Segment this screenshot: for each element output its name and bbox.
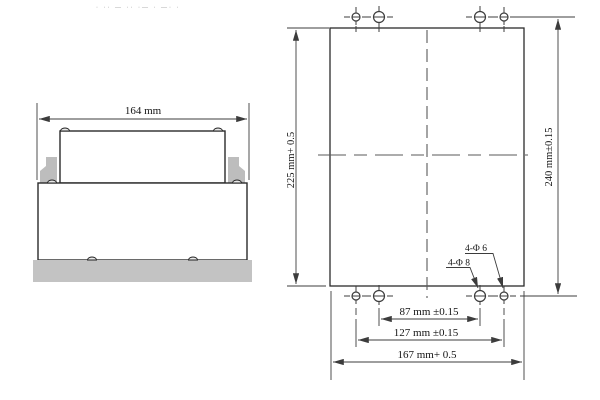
screw-rear-left: [61, 128, 70, 131]
side-view: 164 mm: [33, 103, 252, 282]
panel-cutout-view: 240 mm±0.15 4-Φ 6 4-Φ 8 87 mm ±0.15: [318, 6, 577, 380]
cutout-width-label: 167 mm+ 0.5: [397, 349, 457, 361]
hole-bottom-inner-left: [365, 285, 393, 305]
dimension-drawing: · ·· — ·· ·— · —· · 164 mm 225 mm+ 0.5: [0, 0, 600, 400]
hole-bottom-outer-right: [492, 286, 516, 304]
mounting-panel-bar: [33, 260, 252, 282]
faint-header-marks: · ·· — ·· ·— · —· ·: [96, 5, 180, 11]
screw-front-right: [233, 180, 242, 183]
hole-top-outer-right: [492, 7, 516, 25]
hole-top-outer-left: [344, 7, 368, 25]
cutout-height-dimension: 225 mm+ 0.5: [286, 28, 329, 286]
screw-front-left: [48, 180, 57, 183]
inner-hole-span-dimension: 87 mm ±0.15: [381, 306, 478, 319]
hole-top-inner-right: [466, 6, 494, 26]
device-front-bezel: [38, 183, 247, 260]
hole-span-vertical-label: 240 mm±0.15: [544, 128, 555, 187]
bottom-mounting-holes: [344, 285, 516, 305]
cutout-height-label: 225 mm+ 0.5: [286, 132, 297, 188]
hole-bottom-outer-left: [344, 286, 368, 304]
inner-hole-span-label: 87 mm ±0.15: [400, 306, 459, 318]
mounting-clip-right: [228, 157, 245, 183]
mounting-clip-left: [40, 157, 57, 183]
screw-bottom-left: [88, 257, 97, 260]
width-dimension-label: 164 mm: [125, 105, 162, 117]
outer-hole-span-label: 127 mm ±0.15: [394, 327, 459, 339]
screw-rear-right: [214, 128, 223, 131]
screw-bottom-right: [189, 257, 198, 260]
cutout-width-dimension: 167 mm+ 0.5: [333, 349, 522, 362]
hole-top-inner-left: [365, 6, 393, 26]
outer-holes-diameter-label: 4-Φ 6: [465, 244, 487, 254]
outer-hole-span-dimension: 127 mm ±0.15: [358, 327, 502, 340]
inner-holes-diameter-label: 4-Φ 8: [448, 259, 470, 269]
device-rear-body: [60, 131, 225, 183]
hole-bottom-inner-right: [466, 285, 494, 305]
